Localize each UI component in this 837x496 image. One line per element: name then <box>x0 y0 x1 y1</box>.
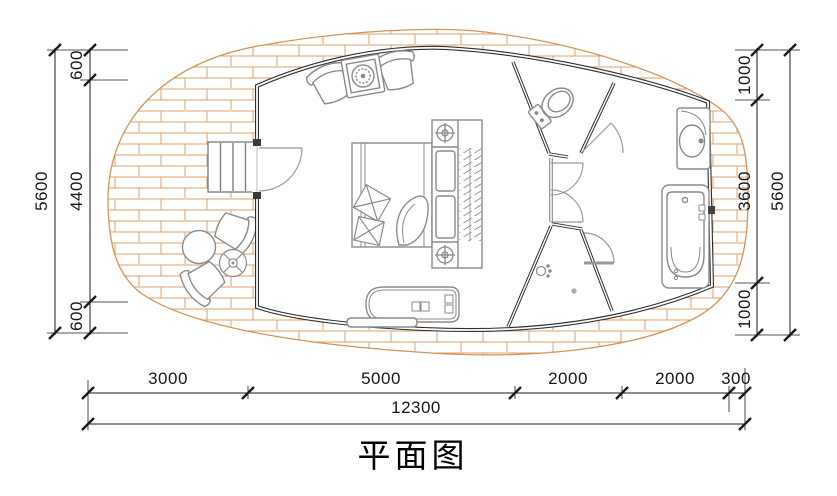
bathtub <box>662 185 709 288</box>
stove-table <box>341 54 385 98</box>
dim-bottom-seg-5: 300 <box>721 369 751 389</box>
dim-bottom-seg-4: 2000 <box>655 369 695 389</box>
dim-left-seg-1: 600 <box>67 50 87 80</box>
floor-plan-drawing <box>0 0 837 496</box>
dim-bottom-total: 12300 <box>391 398 441 418</box>
washbasin <box>677 108 710 169</box>
dim-bottom-seg-1: 3000 <box>148 369 188 389</box>
drawing-title: 平面图 <box>358 429 469 477</box>
dim-left-total: 5600 <box>32 171 52 211</box>
wardrobe-rail <box>432 120 482 268</box>
dim-right-seg-1: 1000 <box>735 55 755 95</box>
dim-right-seg-2: 3600 <box>735 171 755 211</box>
dim-left-seg-3: 600 <box>67 301 87 331</box>
entry-stairs <box>208 142 257 192</box>
round-table <box>183 231 216 264</box>
dim-left-seg-2: 4400 <box>67 171 87 211</box>
floor-plan-page: 5600 600 4400 600 1000 3600 1000 5600 30… <box>0 0 837 496</box>
floor-drain <box>571 288 576 293</box>
dim-right-seg-3: 1000 <box>735 289 755 329</box>
dim-right-total: 5600 <box>768 171 788 211</box>
wall-jamb <box>708 206 715 214</box>
pillow <box>354 217 384 246</box>
dim-bottom-seg-2: 5000 <box>361 369 401 389</box>
planter-table <box>220 250 247 277</box>
dim-bottom-seg-3: 2000 <box>548 369 588 389</box>
